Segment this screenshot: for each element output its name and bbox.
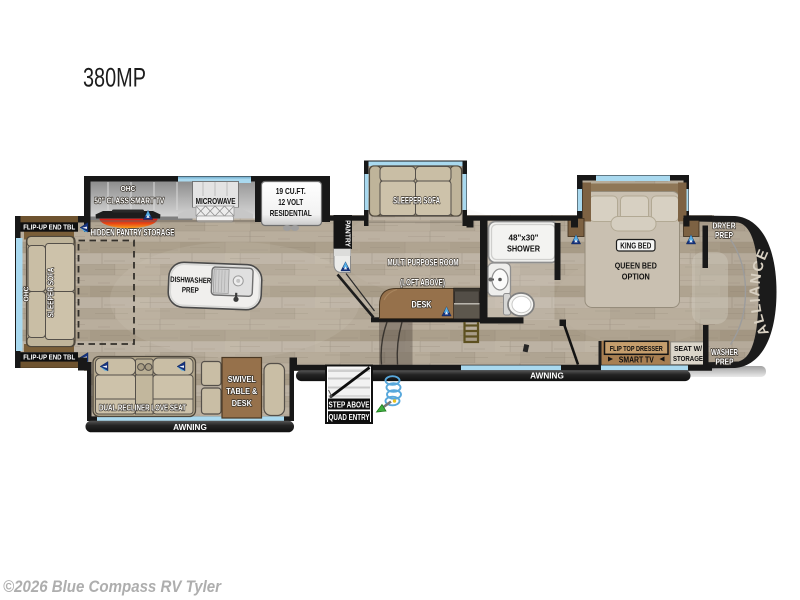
- svg-text:AWNING: AWNING: [173, 423, 207, 432]
- svg-text:SWIVEL: SWIVEL: [228, 375, 256, 384]
- svg-text:SLEEPER SOFA: SLEEPER SOFA: [393, 196, 440, 206]
- svg-text:AWNING: AWNING: [530, 372, 564, 381]
- svg-text:PREP: PREP: [715, 231, 733, 240]
- svg-text:19 CU.FT.: 19 CU.FT.: [276, 186, 306, 196]
- svg-text:QUAD ENTRY: QUAD ENTRY: [329, 412, 370, 422]
- svg-text:DRYER: DRYER: [713, 222, 736, 231]
- svg-text:48"x30": 48"x30": [509, 233, 539, 243]
- svg-text:12 VOLT: 12 VOLT: [278, 197, 304, 207]
- svg-text:OHC: OHC: [121, 184, 137, 193]
- svg-text:KING BED: KING BED: [620, 240, 651, 250]
- svg-text:FLIP-UP END TBL: FLIP-UP END TBL: [23, 353, 75, 362]
- svg-text:PREP: PREP: [182, 285, 199, 295]
- svg-text:WASHER: WASHER: [711, 348, 738, 357]
- svg-text:DESK: DESK: [412, 300, 433, 310]
- svg-text:50" CLASS SMART TV: 50" CLASS SMART TV: [94, 197, 164, 206]
- svg-text:SHOWER: SHOWER: [507, 244, 540, 254]
- svg-text:FLIP-UP END TBL: FLIP-UP END TBL: [23, 223, 75, 232]
- svg-text:TABLE &: TABLE &: [226, 387, 257, 396]
- svg-text:©2026 Blue Compass RV Tyler: ©2026 Blue Compass RV Tyler: [3, 578, 222, 596]
- svg-text:STORAGE: STORAGE: [673, 354, 703, 363]
- svg-text:PANTRY: PANTRY: [344, 220, 353, 247]
- svg-text:STEP ABOVE: STEP ABOVE: [329, 399, 370, 409]
- svg-text:SLEEPER SOFA: SLEEPER SOFA: [46, 268, 56, 318]
- svg-text:RESIDENTIAL: RESIDENTIAL: [270, 208, 312, 218]
- svg-text:OHC: OHC: [22, 287, 31, 302]
- svg-text:DISHWASHER: DISHWASHER: [170, 275, 212, 286]
- svg-text:SEAT W/: SEAT W/: [674, 344, 702, 353]
- svg-text:PREP: PREP: [716, 358, 734, 367]
- svg-text:(LOFT ABOVE): (LOFT ABOVE): [400, 278, 445, 288]
- svg-text:QUEEN BED: QUEEN BED: [615, 261, 657, 271]
- svg-text:DUAL RECLINER LOVE SEAT: DUAL RECLINER LOVE SEAT: [99, 404, 186, 413]
- svg-text:DESK: DESK: [232, 399, 252, 408]
- svg-text:FLIP TOP DRESSER: FLIP TOP DRESSER: [610, 344, 663, 353]
- svg-text:SMART TV: SMART TV: [619, 356, 655, 365]
- svg-text:MICROWAVE: MICROWAVE: [196, 196, 236, 206]
- svg-text:380MP: 380MP: [83, 63, 146, 93]
- svg-text:HIDDEN PANTRY STORAGE: HIDDEN PANTRY STORAGE: [91, 228, 175, 238]
- svg-text:OPTION: OPTION: [622, 272, 650, 282]
- svg-text:MULTI PURPOSE ROOM: MULTI PURPOSE ROOM: [388, 258, 459, 269]
